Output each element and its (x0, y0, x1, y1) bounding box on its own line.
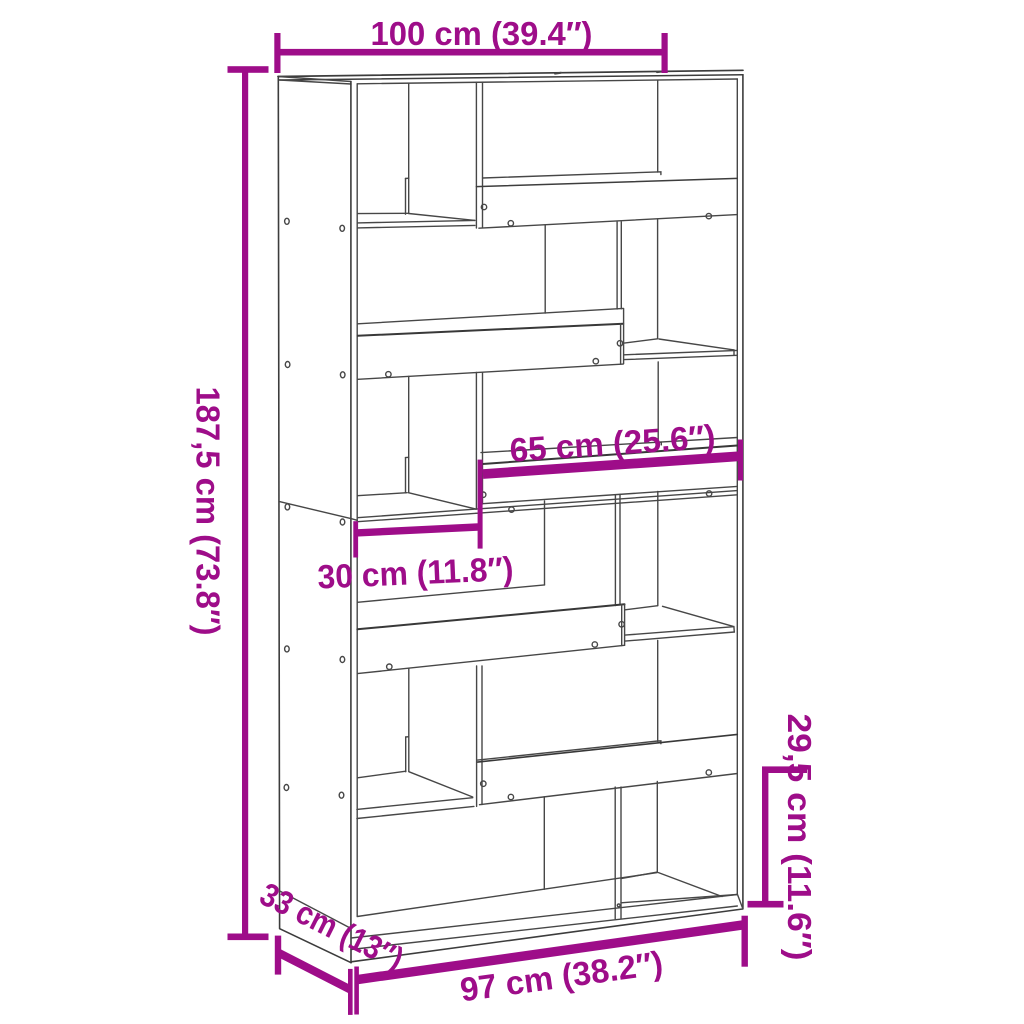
svg-text:29,5 cm (11.6″): 29,5 cm (11.6″) (780, 714, 817, 961)
svg-text:100 cm (39.4″): 100 cm (39.4″) (371, 16, 593, 53)
svg-text:187,5 cm (73.8″): 187,5 cm (73.8″) (189, 387, 226, 636)
